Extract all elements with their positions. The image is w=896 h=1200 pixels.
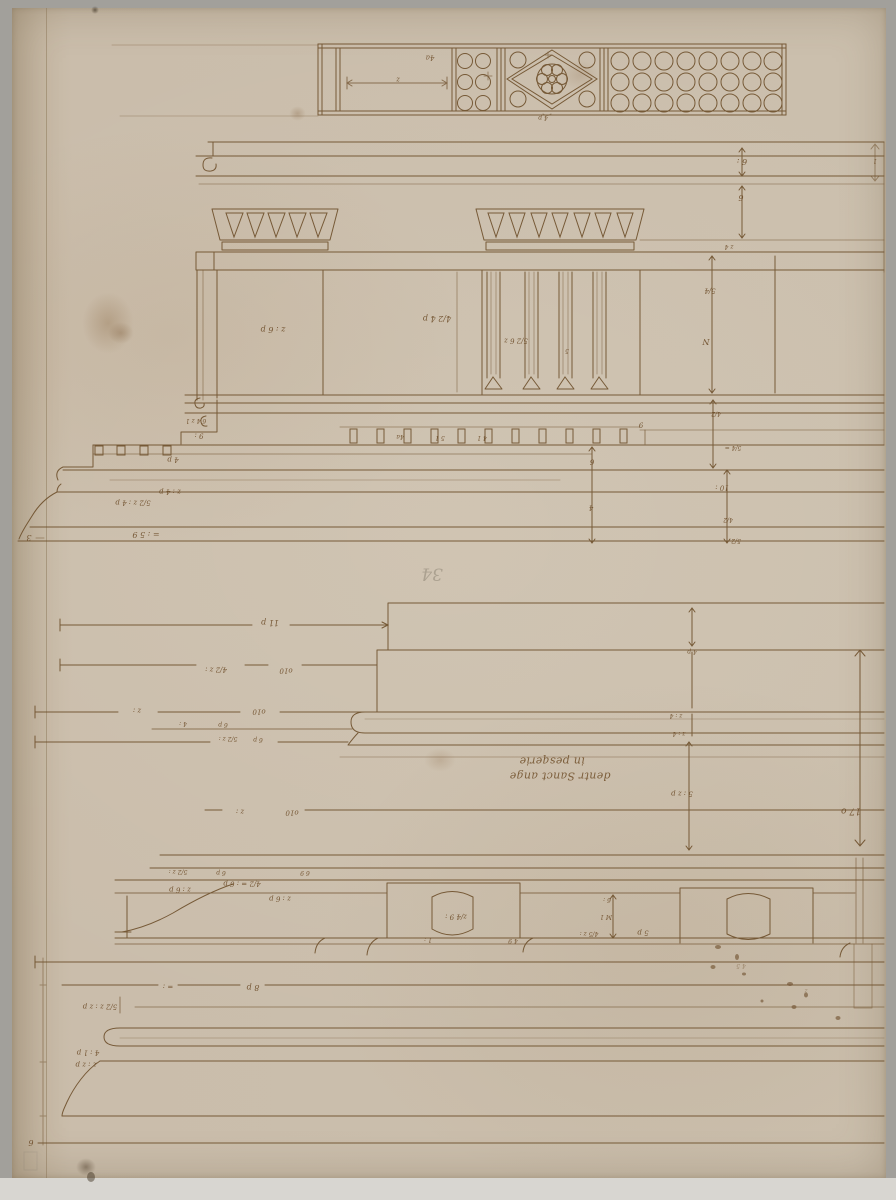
measurement-annotation: 1 : bbox=[424, 936, 432, 942]
measurement-annotation: M 1 bbox=[600, 913, 612, 919]
measurement-annotation: 6 bbox=[738, 193, 743, 201]
measurement-annotation: 4/2 bbox=[723, 516, 733, 522]
measurement-annotation: 4 9 bbox=[508, 937, 518, 943]
measurement-annotation: z : 6 p bbox=[169, 886, 191, 893]
measurement-annotation: 6 4 z 1 bbox=[186, 417, 206, 423]
measurement-annotation: 4 1 bbox=[477, 434, 487, 440]
measurement-annotation: 4/5 z : bbox=[580, 930, 599, 936]
measurement-annotation: z : bbox=[236, 808, 244, 815]
measurement-annotation: z : 6 p bbox=[261, 325, 286, 333]
measurement-annotation: N bbox=[703, 337, 710, 345]
measurement-annotation: 6 p bbox=[216, 869, 226, 875]
measurement-annotation: 4a bbox=[426, 54, 435, 61]
measurement-annotation: 6 : bbox=[737, 157, 747, 165]
measurement-annotation: 5 p bbox=[637, 929, 648, 936]
measurement-annotation: 6 p bbox=[253, 736, 263, 742]
measurement-annotation: = : bbox=[163, 983, 173, 990]
measurement-annotation: 8 p bbox=[247, 983, 260, 991]
measurement-annotation: 5/2 6 z bbox=[504, 337, 528, 344]
measurement-annotation: 9 bbox=[639, 421, 643, 428]
measurement-annotation: z/4 9 : bbox=[445, 913, 467, 920]
measurement-annotation: 4 : bbox=[179, 720, 187, 726]
measurement-annotation: 5/4 bbox=[704, 287, 715, 294]
measurement-annotation: o10 bbox=[285, 809, 298, 816]
inscription-line: in pesqerie bbox=[519, 756, 584, 767]
measurement-annotation: 6 bbox=[28, 1138, 33, 1146]
measurement-annotation: z bbox=[396, 76, 400, 83]
measurement-annotation: z : bbox=[133, 707, 141, 714]
measurement-annotation: 5/2 z : bbox=[219, 735, 238, 741]
measurement-annotation: 4 p bbox=[687, 648, 697, 654]
measurement-annotation: z : z p bbox=[76, 1061, 97, 1068]
measurement-annotation: 5/4 = bbox=[725, 444, 742, 450]
measurement-annotation: = : 5 9 bbox=[132, 530, 159, 538]
measurement-annotation: 4/2 z : bbox=[205, 666, 227, 673]
annotation-layer: z4a4 p6 :6z 45/4Nz : 6 p4/2 4 p5/2 6 z54… bbox=[0, 0, 896, 1200]
measurement-annotation: 4/2 = : 6 p bbox=[223, 880, 260, 887]
measurement-annotation: 11 p bbox=[261, 618, 279, 626]
measurement-annotation: o10 bbox=[279, 667, 292, 674]
measurement-annotation: 6 bbox=[590, 458, 594, 465]
measurement-annotation: 34 bbox=[421, 565, 443, 582]
measurement-annotation: 6 p bbox=[218, 721, 228, 727]
measurement-annotation: 4 5 bbox=[736, 962, 746, 968]
measurement-annotation: 4/2 bbox=[711, 410, 721, 416]
measurement-annotation: 6 : bbox=[603, 896, 611, 902]
measurement-annotation: 4/2 4 p bbox=[423, 314, 451, 322]
measurement-annotation: z 4 bbox=[725, 243, 734, 249]
measurement-annotation: 4 : 1 p bbox=[77, 1049, 99, 1056]
measurement-annotation: 10 : bbox=[715, 484, 729, 491]
measurement-annotation: 4 bbox=[589, 504, 593, 511]
measurement-annotation: 5/2 bbox=[731, 537, 741, 543]
measurement-annotation: 4 p bbox=[538, 114, 548, 120]
measurement-annotation: 5 1 bbox=[435, 434, 445, 440]
drawing-scan: { "palette": { "mount": "#a2a09b", "moun… bbox=[0, 0, 896, 1200]
measurement-annotation: z : 4 p bbox=[159, 488, 181, 495]
measurement-annotation: z : 4 bbox=[670, 712, 683, 718]
measurement-annotation: 5/2 z : bbox=[169, 868, 188, 874]
measurement-annotation: 1 bbox=[873, 157, 877, 163]
measurement-annotation: z : 4 bbox=[673, 730, 686, 736]
measurement-annotation: 6 9 bbox=[300, 869, 310, 875]
measurement-annotation: z : 6 p bbox=[269, 895, 291, 902]
measurement-annotation: o10 bbox=[252, 708, 265, 715]
inscription-line: dentr Sanct ange bbox=[509, 771, 610, 782]
measurement-annotation: 9 : bbox=[194, 432, 203, 439]
measurement-annotation: 4a bbox=[396, 433, 403, 439]
measurement-annotation: 4 p bbox=[167, 456, 178, 463]
measurement-annotation: z bbox=[804, 987, 807, 993]
measurement-annotation: 17 o bbox=[841, 806, 861, 815]
measurement-annotation: 3 bbox=[26, 533, 31, 541]
measurement-annotation: 5 bbox=[565, 347, 569, 353]
measurement-annotation: 5 : z p bbox=[671, 790, 693, 797]
measurement-annotation: 5/2 z : z p bbox=[83, 1003, 117, 1010]
measurement-annotation: 5/2 z : 4 p bbox=[115, 499, 150, 506]
